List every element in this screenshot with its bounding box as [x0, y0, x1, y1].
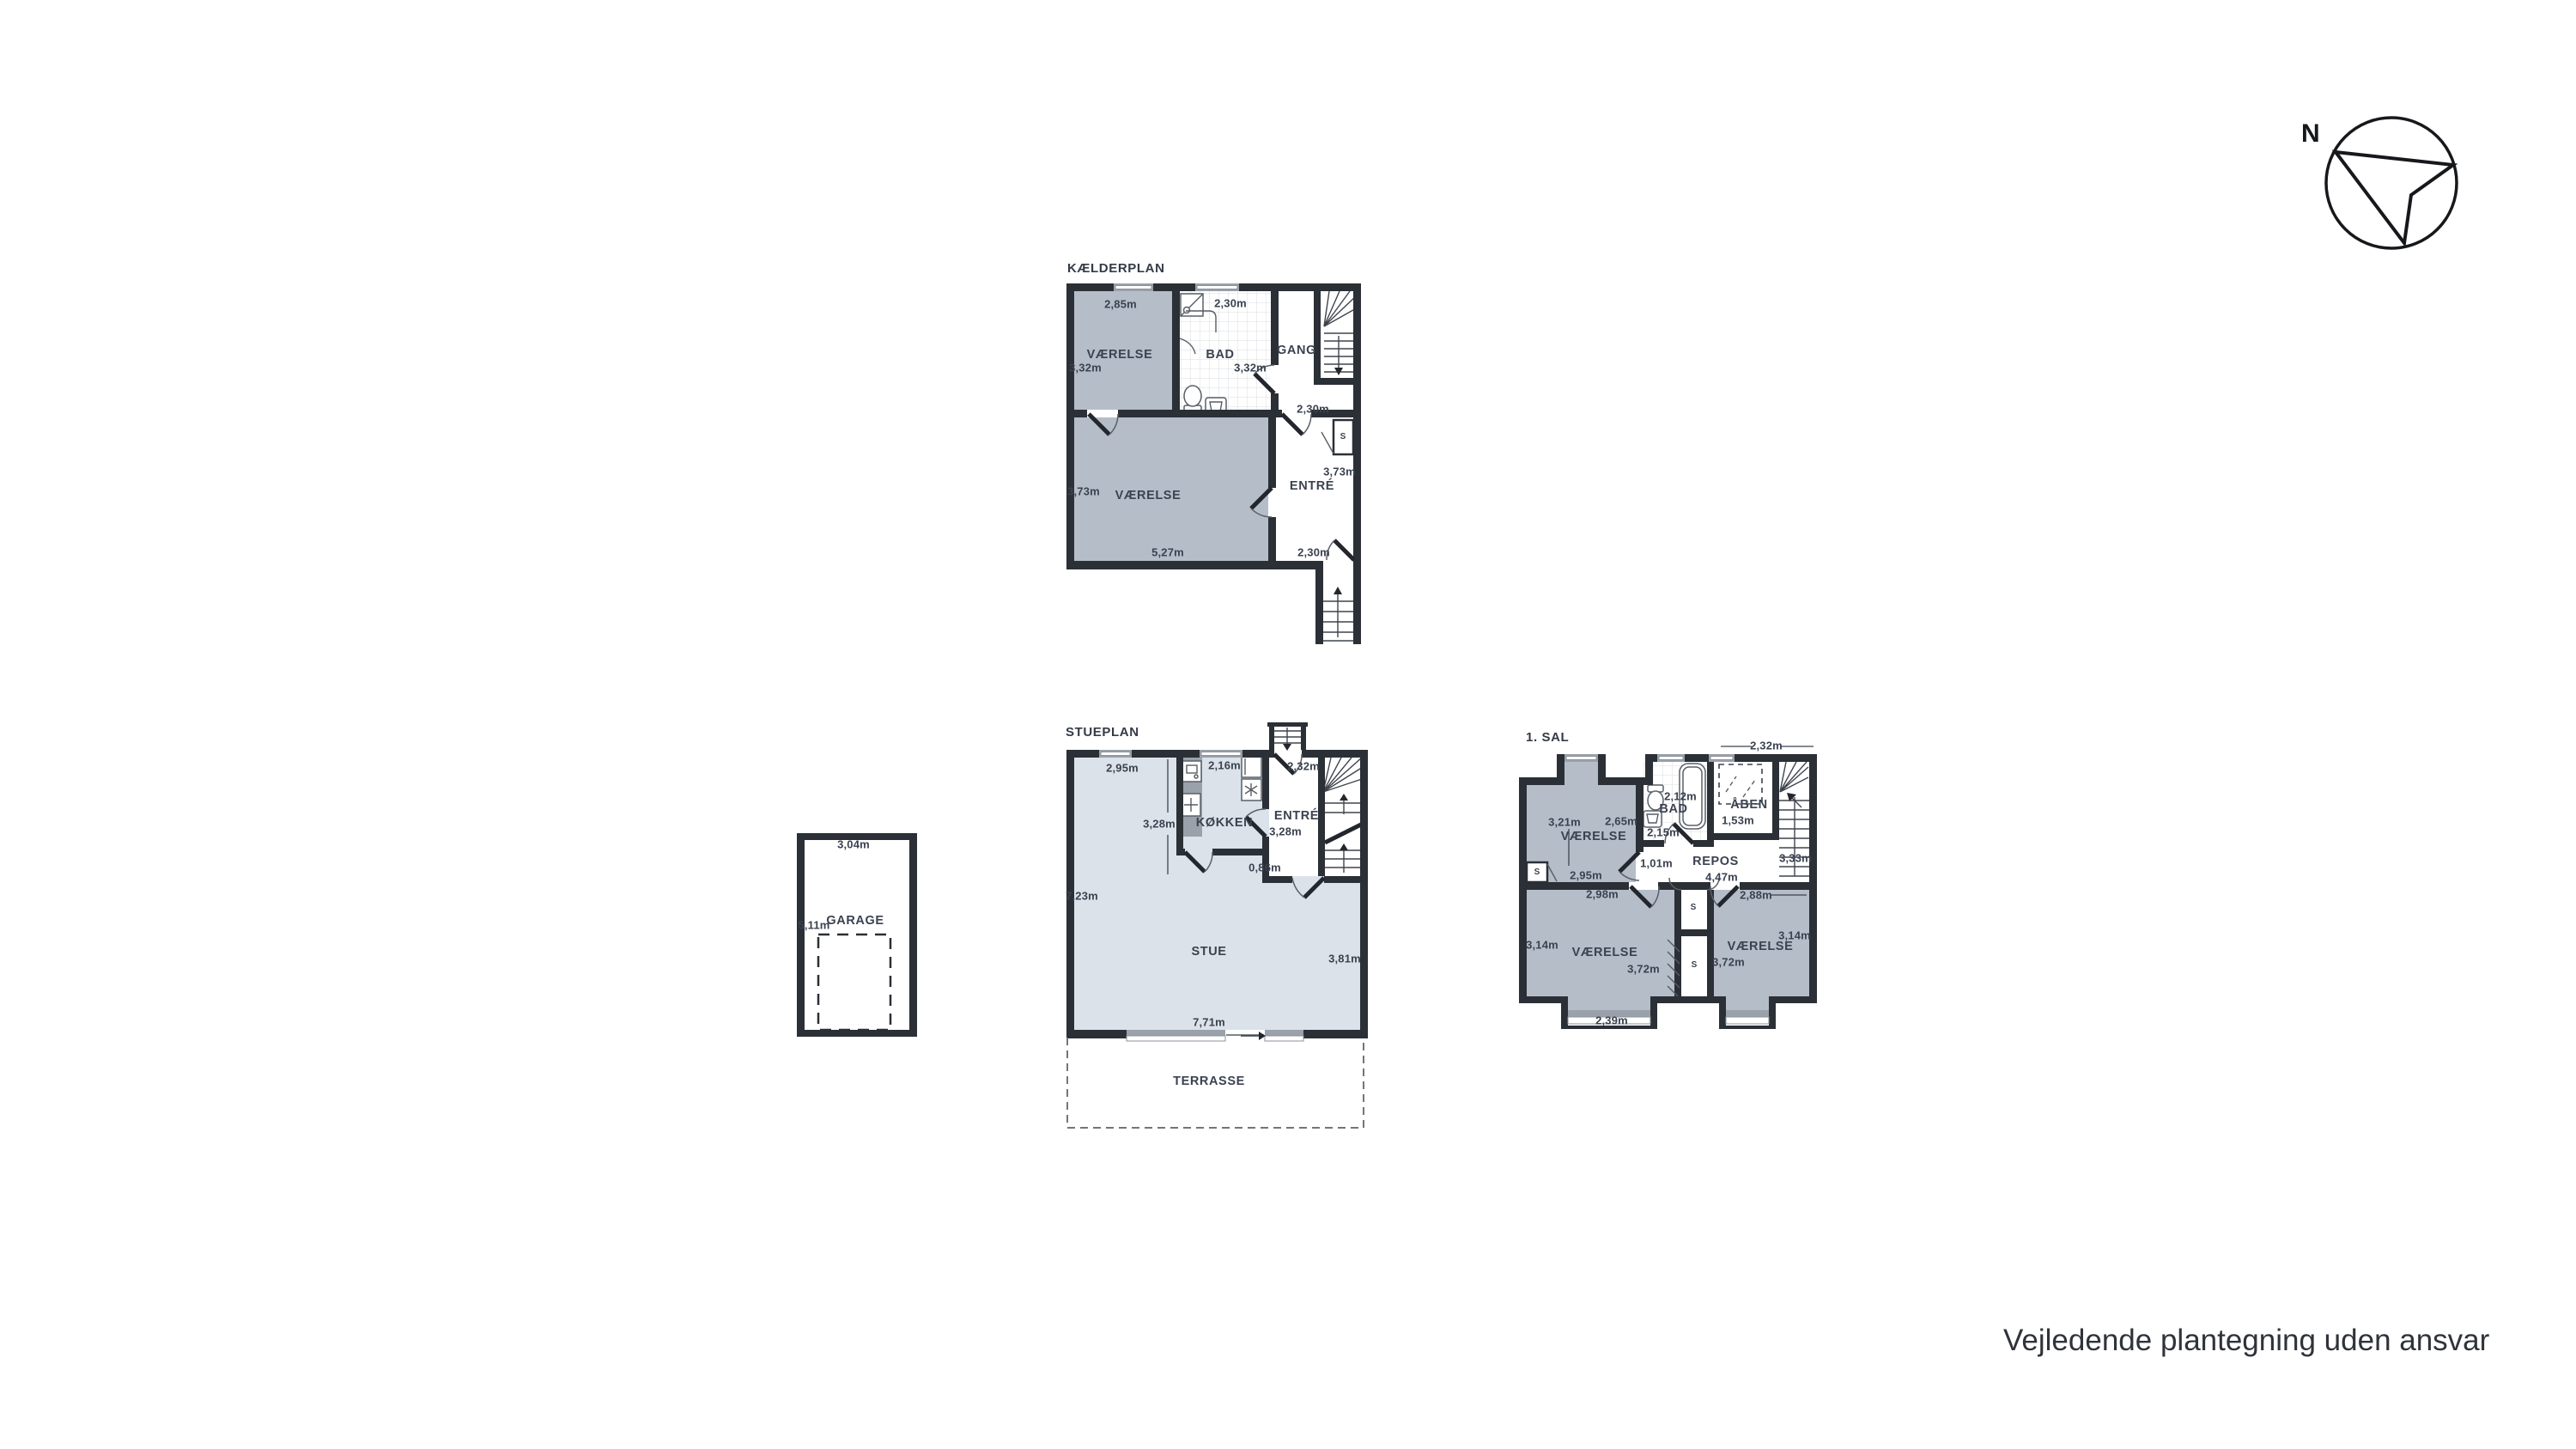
closet-label-sal-upper: S [1691, 904, 1697, 912]
closet-label-kaelder-entre: S [1340, 433, 1346, 441]
dim-sal-vaerelse-sw-width-bottom: 2,39m [1595, 1015, 1628, 1026]
stueplan-entry-steps [1267, 722, 1308, 751]
dim-stue-koekken-width: 2,16m [1208, 760, 1241, 771]
dim-garage-depth: 5,11m [798, 920, 829, 931]
dim-sal-vaerelse-se-width-top: 2,88m [1740, 890, 1772, 901]
dim-stue-entre-width: 2,32m [1287, 761, 1320, 772]
dim-sal-vaerelse-sw-depth-left: 3,14m [1526, 940, 1558, 951]
north-label: N [2301, 121, 2320, 147]
dim-sal-bad-width: 2,12m [1664, 791, 1697, 802]
closet-label-sal-lower: S [1692, 961, 1698, 970]
dim-sal-aaben-width: 1,53m [1722, 815, 1754, 826]
dim-kaelder-entre-width-bottom: 2,30m [1297, 547, 1330, 558]
foerste-sal-drawing [1514, 735, 1830, 1036]
dim-kaelder-vaerelse-bottom-width: 5,27m [1151, 547, 1184, 558]
dim-stue-depth-right: 3,81m [1328, 953, 1361, 965]
kaelderplan-title: KÆLDERPLAN [1067, 262, 1165, 275]
dim-kaelder-vaerelse-top-width: 2,85m [1104, 299, 1137, 310]
dim-kaelder-vaerelse-top-depth: 3,32m [1069, 362, 1102, 374]
room-label-sal-bad: BAD [1659, 803, 1687, 816]
closet-label-sal-nw: S [1534, 868, 1540, 877]
dim-stue-entre-depth: 3,28m [1269, 826, 1302, 837]
room-label-kaelder-gang: GANG [1277, 344, 1316, 357]
room-label-stue-terrasse: TERRASSE [1173, 1075, 1245, 1088]
dim-sal-vaerelse-nw-depth: 3,21m [1548, 817, 1581, 828]
dim-stue-height-left: 7,23m [1066, 891, 1098, 902]
dim-sal-repos-depth: 3,33m [1779, 853, 1812, 864]
dim-stue-width-bottom: 7,71m [1193, 1017, 1225, 1028]
room-label-stue-entre: ENTRÉ [1274, 810, 1319, 823]
room-label-kaelder-entre: ENTRÉ [1290, 480, 1334, 493]
room-label-sal-repos: REPOS [1692, 855, 1739, 868]
room-label-sal-vaerelse-nw: VÆRELSE [1561, 831, 1627, 843]
dim-kaelder-entre-width-top: 2,30m [1297, 404, 1329, 415]
room-label-kaelder-vaerelse-top: VÆRELSE [1087, 349, 1153, 362]
dim-sal-vaerelse-se-depth-left: 3,72m [1712, 957, 1745, 968]
floorplan-page: KÆLDERPLAN [0, 0, 2576, 1449]
dim-kaelder-vaerelse-bottom-depth: 3,73m [1067, 486, 1100, 497]
dim-stue-left-width: 2,95m [1106, 763, 1139, 774]
dim-sal-vaerelse-sw-depth-right: 3,72m [1627, 964, 1660, 975]
dim-garage-width: 3,04m [837, 839, 870, 850]
dim-sal-vaerelse-nw-width: 2,65m [1605, 816, 1637, 827]
disclaimer-text: Vejledende plantegning uden ansvar [2003, 1324, 2489, 1358]
dim-sal-vaerelse-sw-width-top: 2,98m [1586, 889, 1619, 900]
dim-kaelder-bad-width: 2,30m [1214, 298, 1247, 309]
room-label-kaelder-bad: BAD [1206, 349, 1234, 362]
room-label-stue-stue: STUE [1191, 946, 1226, 959]
stueplan-room-fills [1074, 758, 1360, 1030]
garage-drawing [793, 828, 924, 1044]
dim-kaelder-bad-depth: 3,32m [1234, 362, 1267, 374]
room-label-sal-aaben: ÅBEN [1730, 799, 1768, 812]
room-label-kaelder-vaerelse-bottom: VÆRELSE [1115, 490, 1182, 502]
room-label-stue-koekken: KØKKEN [1196, 817, 1253, 830]
dim-sal-repos-passage: 1,01m [1640, 858, 1673, 869]
dim-sal-top-right: 2,32m [1750, 740, 1783, 752]
room-label-garage: GARAGE [826, 915, 884, 928]
room-label-sal-vaerelse-se: VÆRELSE [1728, 941, 1794, 953]
room-label-sal-vaerelse-sw: VÆRELSE [1572, 947, 1638, 959]
compass-rose [2320, 112, 2463, 254]
dim-sal-vaerelse-nw-width-bottom: 2,95m [1570, 870, 1602, 881]
dim-sal-bad-width-inner: 2,15m [1647, 827, 1680, 838]
dim-stue-entre-passage: 0,86m [1249, 862, 1281, 874]
dim-kaelder-entre-depth: 3,73m [1323, 466, 1356, 478]
dim-sal-repos-width: 4,47m [1705, 872, 1738, 883]
dim-stue-koekken-depth: 3,28m [1143, 819, 1176, 830]
